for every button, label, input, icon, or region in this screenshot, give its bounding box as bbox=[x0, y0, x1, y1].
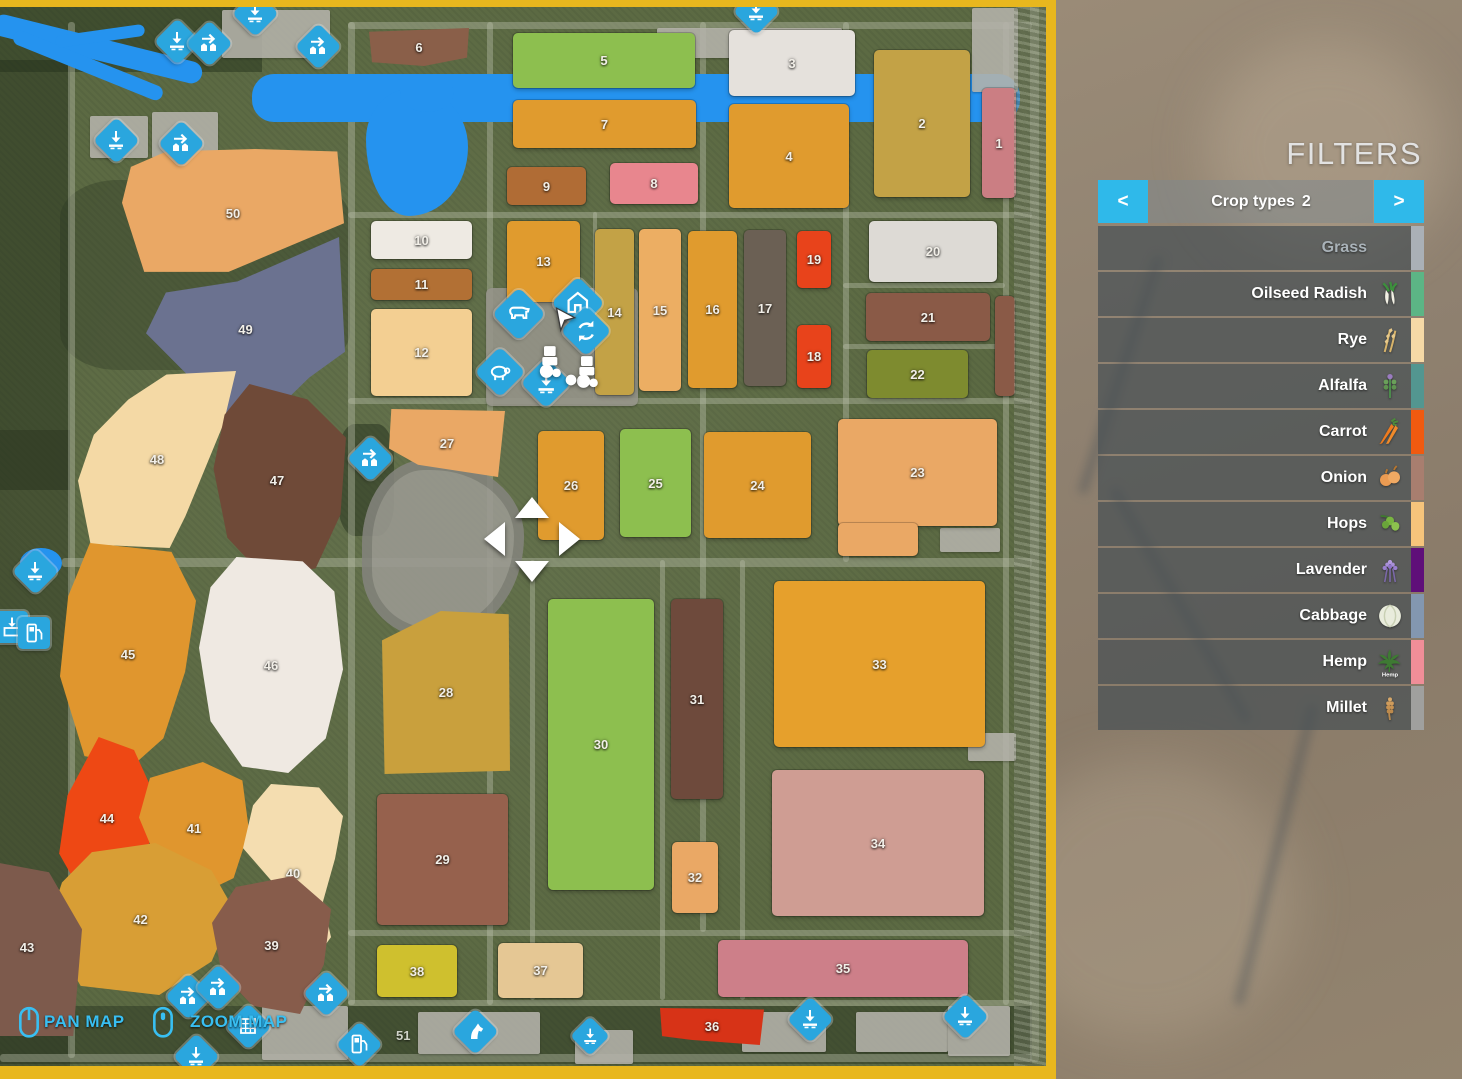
field-number-label: 38 bbox=[410, 964, 424, 979]
filter-list: GrassOilseed RadishRyeAlfalfaCarrotOnion… bbox=[1098, 226, 1424, 732]
filter-color-strip bbox=[1411, 502, 1424, 546]
map-field-34[interactable]: 34 bbox=[772, 770, 984, 916]
field-number-label: 26 bbox=[564, 478, 578, 493]
field-number-label: 36 bbox=[705, 1019, 719, 1034]
field-number-label: 2 bbox=[918, 116, 925, 131]
field-number-label: 28 bbox=[439, 685, 453, 700]
filter-label: Rye bbox=[1338, 331, 1367, 349]
map-field-8[interactable]: 8 bbox=[610, 163, 698, 204]
filter-color-strip bbox=[1411, 272, 1424, 316]
field-number-label: 15 bbox=[653, 303, 667, 318]
filter-row-alfalfa[interactable]: Alfalfa bbox=[1098, 364, 1424, 408]
map-border-bottom bbox=[0, 1066, 1056, 1079]
field-number-label: 12 bbox=[414, 345, 428, 360]
field-number-label: 43 bbox=[20, 940, 34, 955]
lavender-icon bbox=[1373, 553, 1407, 587]
onion-icon bbox=[1373, 461, 1407, 495]
vehicle-dot-icon bbox=[563, 372, 579, 388]
filter-color-strip bbox=[1411, 594, 1424, 638]
cow-pen-icon[interactable] bbox=[496, 291, 542, 337]
unload-point-icon[interactable] bbox=[790, 999, 830, 1039]
cabbage-icon bbox=[1373, 599, 1407, 633]
filter-label: Carrot bbox=[1319, 423, 1367, 441]
map-field-32[interactable]: 32 bbox=[672, 842, 718, 913]
field-number-label: 33 bbox=[872, 657, 886, 672]
fuel-station-icon[interactable] bbox=[339, 1024, 379, 1064]
filter-row-carrot[interactable]: Carrot bbox=[1098, 410, 1424, 454]
field-number-label: 4 bbox=[785, 149, 792, 164]
field-number-label: 37 bbox=[533, 963, 547, 978]
filter-category-header: < Crop types 2 > bbox=[1098, 180, 1424, 223]
none-icon bbox=[1373, 231, 1407, 265]
filter-label: Oilseed Radish bbox=[1251, 285, 1367, 303]
field-number-label: 42 bbox=[133, 912, 147, 927]
map-field-part[interactable] bbox=[995, 296, 1015, 396]
farming-sim-map-screen: 6532174981011131214151617191820212227262… bbox=[0, 0, 1462, 1079]
map-label-51: 51 bbox=[396, 1028, 410, 1043]
field-number-label: 32 bbox=[688, 870, 702, 885]
map-field-20[interactable]: 20 bbox=[869, 221, 997, 282]
filter-row-grass[interactable]: Grass bbox=[1098, 226, 1424, 270]
field-number-label: 8 bbox=[650, 176, 657, 191]
map-field-28[interactable]: 28 bbox=[382, 611, 510, 774]
field-number-label: 20 bbox=[926, 244, 940, 259]
field-number-label: 24 bbox=[750, 478, 764, 493]
field-number-label: 6 bbox=[415, 40, 422, 55]
field-number-label: 19 bbox=[807, 252, 821, 267]
filter-row-millet[interactable]: Millet bbox=[1098, 686, 1424, 730]
map-field-25[interactable]: 25 bbox=[620, 429, 691, 537]
filter-row-lavender[interactable]: Lavender bbox=[1098, 548, 1424, 592]
filter-label: Hops bbox=[1327, 515, 1367, 533]
field-number-label: 10 bbox=[414, 233, 428, 248]
filter-color-strip bbox=[1411, 410, 1424, 454]
rye-icon bbox=[1373, 323, 1407, 357]
filter-color-strip bbox=[1411, 318, 1424, 362]
field-number-label: 41 bbox=[187, 821, 201, 836]
map-pointer-icon bbox=[551, 305, 581, 335]
map-field-21[interactable]: 21 bbox=[866, 293, 990, 341]
sell-point-icon[interactable] bbox=[306, 973, 346, 1013]
filter-label: Alfalfa bbox=[1318, 377, 1367, 395]
filter-row-hemp[interactable]: HempHemp bbox=[1098, 640, 1424, 684]
field-number-label: 23 bbox=[910, 465, 924, 480]
field-number-label: 7 bbox=[601, 117, 608, 132]
field-number-label: 14 bbox=[607, 305, 621, 320]
field-number-label: 18 bbox=[807, 349, 821, 364]
field-number-label: 46 bbox=[264, 658, 278, 673]
map-field-17[interactable]: 17 bbox=[744, 230, 786, 386]
filter-color-strip bbox=[1411, 226, 1424, 270]
field-number-label: 48 bbox=[150, 452, 164, 467]
filter-label: Grass bbox=[1322, 239, 1367, 257]
field-number-label: 16 bbox=[705, 302, 719, 317]
map-field-11[interactable]: 11 bbox=[371, 269, 472, 300]
field-number-label: 5 bbox=[600, 53, 607, 68]
map-field-22[interactable]: 22 bbox=[867, 350, 968, 398]
map-field-23[interactable]: 23 bbox=[838, 419, 997, 526]
field-number-label: 30 bbox=[594, 737, 608, 752]
map-field-12[interactable]: 12 bbox=[371, 309, 472, 396]
filter-row-onion[interactable]: Onion bbox=[1098, 456, 1424, 500]
unload-point-icon[interactable] bbox=[15, 551, 55, 591]
sell-point-icon[interactable] bbox=[350, 438, 390, 478]
filter-label: Lavender bbox=[1296, 561, 1367, 579]
field-number-label: 21 bbox=[921, 310, 935, 325]
map-field-35[interactable]: 35 bbox=[718, 940, 968, 997]
field-number-label: 25 bbox=[648, 476, 662, 491]
sell-point-icon[interactable] bbox=[198, 967, 238, 1007]
map-field-18[interactable]: 18 bbox=[797, 325, 831, 388]
field-number-label: 31 bbox=[690, 692, 704, 707]
filter-label: Onion bbox=[1321, 469, 1367, 487]
map-field-30[interactable]: 30 bbox=[548, 599, 654, 890]
unload-point-icon[interactable] bbox=[945, 996, 985, 1036]
mouse-zoom-icon bbox=[150, 1006, 176, 1038]
cursor-arrow-left-icon bbox=[484, 522, 505, 556]
map-field-9[interactable]: 9 bbox=[507, 167, 586, 205]
map-field-19[interactable]: 19 bbox=[797, 231, 831, 288]
field-number-label: 11 bbox=[415, 277, 429, 292]
filter-row-oilseed-radish[interactable]: Oilseed Radish bbox=[1098, 272, 1424, 316]
map-field-5[interactable]: 5 bbox=[513, 33, 695, 88]
filter-label: Millet bbox=[1326, 699, 1367, 717]
map-field-1[interactable]: 1 bbox=[982, 88, 1016, 198]
filters-prev-button[interactable]: < bbox=[1098, 180, 1148, 223]
field-number-label: 22 bbox=[910, 367, 924, 382]
filters-panel: FILTERS < Crop types 2 > GrassOilseed Ra… bbox=[1056, 0, 1462, 1079]
filter-category-label: Crop types bbox=[1211, 193, 1295, 211]
zoom-map-label: ZOOM MAP bbox=[190, 1012, 288, 1032]
hops-icon bbox=[1373, 507, 1407, 541]
cursor-arrow-up-icon bbox=[515, 497, 549, 518]
pan-map-label: PAN MAP bbox=[44, 1012, 125, 1032]
filter-color-strip bbox=[1411, 640, 1424, 684]
map-field-16[interactable]: 16 bbox=[688, 231, 737, 388]
field-number-label: 3 bbox=[788, 56, 795, 71]
map-field-37[interactable]: 37 bbox=[498, 943, 583, 998]
field-number-label: 39 bbox=[264, 938, 278, 953]
filter-row-cabbage[interactable]: Cabbage bbox=[1098, 594, 1424, 638]
map-field-2[interactable]: 2 bbox=[874, 50, 970, 197]
map-field-10[interactable]: 10 bbox=[371, 221, 472, 259]
field-number-label: 34 bbox=[871, 836, 885, 851]
map-field-3[interactable]: 3 bbox=[729, 30, 855, 96]
sell-point-icon[interactable] bbox=[161, 123, 201, 163]
map-field-7[interactable]: 7 bbox=[513, 100, 696, 148]
filter-color-strip bbox=[1411, 686, 1424, 730]
filter-category-count: 2 bbox=[1302, 193, 1311, 211]
carrot-icon bbox=[1373, 415, 1407, 449]
millet-icon bbox=[1373, 691, 1407, 725]
field-number-label: 27 bbox=[440, 436, 454, 451]
filter-row-rye[interactable]: Rye bbox=[1098, 318, 1424, 362]
hemp-icon: Hemp bbox=[1373, 645, 1407, 679]
filter-label: Cabbage bbox=[1299, 607, 1367, 625]
filter-row-hops[interactable]: Hops bbox=[1098, 502, 1424, 546]
map-field-part[interactable] bbox=[838, 523, 918, 556]
alfalfa-icon bbox=[1373, 369, 1407, 403]
filters-next-button[interactable]: > bbox=[1374, 180, 1424, 223]
field-number-label: 9 bbox=[543, 179, 550, 194]
map-border-right bbox=[1046, 0, 1056, 1079]
unload-point-icon[interactable] bbox=[96, 120, 136, 160]
field-number-label: 50 bbox=[226, 206, 240, 221]
sell-point-icon[interactable] bbox=[298, 26, 338, 66]
field-number-label: 49 bbox=[238, 322, 252, 337]
field-number-label: 1 bbox=[995, 136, 1002, 151]
field-number-label: 44 bbox=[100, 811, 114, 826]
map-field-4[interactable]: 4 bbox=[729, 104, 849, 208]
filter-color-strip bbox=[1411, 548, 1424, 592]
field-number-label: 47 bbox=[270, 473, 284, 488]
mouse-pan-icon bbox=[16, 1006, 42, 1038]
unload-point-icon[interactable] bbox=[573, 1019, 607, 1053]
horse-paddock-icon[interactable] bbox=[455, 1011, 495, 1051]
fuel-station-icon[interactable] bbox=[14, 613, 54, 653]
animal-pen-icon[interactable] bbox=[478, 350, 522, 394]
svg-text:Hemp: Hemp bbox=[1382, 673, 1399, 678]
filter-color-strip bbox=[1411, 456, 1424, 500]
filter-color-strip bbox=[1411, 364, 1424, 408]
map-edge-strip bbox=[1014, 7, 1046, 1066]
field-number-label: 13 bbox=[536, 254, 550, 269]
field-number-label: 35 bbox=[836, 961, 850, 976]
map-field-24[interactable]: 24 bbox=[704, 432, 811, 538]
map-field-38[interactable]: 38 bbox=[377, 945, 457, 997]
cursor-arrow-down-icon bbox=[515, 561, 549, 582]
map-field-29[interactable]: 29 bbox=[377, 794, 508, 925]
filter-category-bar: Crop types 2 bbox=[1149, 180, 1373, 223]
filter-label: Hemp bbox=[1323, 653, 1367, 671]
cursor-arrow-right-icon bbox=[559, 522, 580, 556]
map-border-top bbox=[0, 0, 1056, 7]
field-number-label: 17 bbox=[758, 301, 772, 316]
field-number-label: 29 bbox=[435, 852, 449, 867]
map-field-33[interactable]: 33 bbox=[774, 581, 985, 747]
sell-point-icon[interactable] bbox=[189, 23, 229, 63]
oilseed-radish-icon bbox=[1373, 277, 1407, 311]
field-number-label: 45 bbox=[121, 647, 135, 662]
map-field-15[interactable]: 15 bbox=[639, 229, 681, 391]
filters-title: FILTERS bbox=[1286, 136, 1422, 172]
map-viewport[interactable]: 6532174981011131214151617191820212227262… bbox=[0, 0, 1056, 1079]
map-field-31[interactable]: 31 bbox=[671, 599, 723, 799]
